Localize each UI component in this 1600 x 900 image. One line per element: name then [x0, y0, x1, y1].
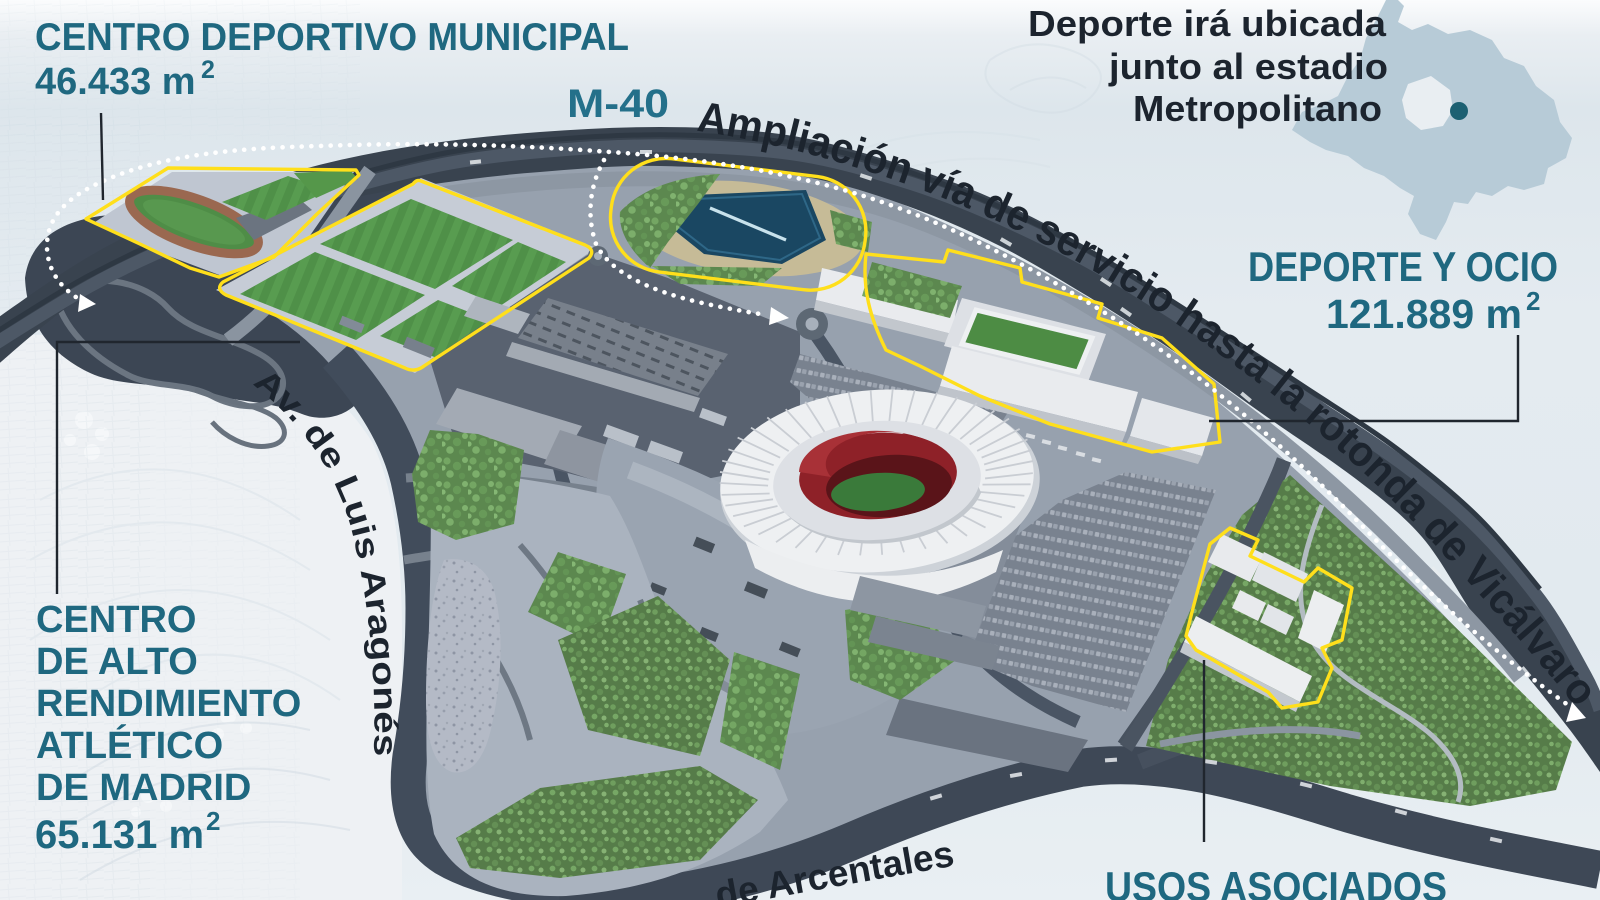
svg-text:Metropolitano: Metropolitano	[1133, 88, 1382, 129]
svg-text:M-40: M-40	[567, 82, 669, 126]
svg-text:2: 2	[206, 806, 220, 836]
svg-text:RENDIMIENTO: RENDIMIENTO	[36, 683, 301, 725]
svg-text:121.889 m: 121.889 m	[1326, 291, 1522, 337]
svg-text:2: 2	[201, 56, 215, 84]
svg-text:CENTRO DEPORTIVO MUNICIPAL: CENTRO DEPORTIVO MUNICIPAL	[35, 16, 629, 59]
svg-text:Deporte irá ubicada: Deporte irá ubicada	[1028, 3, 1387, 44]
svg-text:ATLÉTICO: ATLÉTICO	[36, 723, 223, 767]
svg-text:junto al estadio: junto al estadio	[1108, 46, 1388, 87]
svg-text:CENTRO: CENTRO	[36, 599, 196, 641]
svg-text:DE MADRID: DE MADRID	[36, 767, 251, 809]
svg-text:2: 2	[1526, 286, 1540, 316]
svg-text:DE ALTO: DE ALTO	[36, 641, 198, 683]
svg-text:USOS ASOCIADOS: USOS ASOCIADOS	[1105, 863, 1447, 900]
svg-text:46.433 m: 46.433 m	[35, 61, 196, 103]
svg-text:65.131 m: 65.131 m	[35, 813, 204, 857]
svg-text:DEPORTE Y OCIO: DEPORTE Y OCIO	[1248, 243, 1558, 290]
